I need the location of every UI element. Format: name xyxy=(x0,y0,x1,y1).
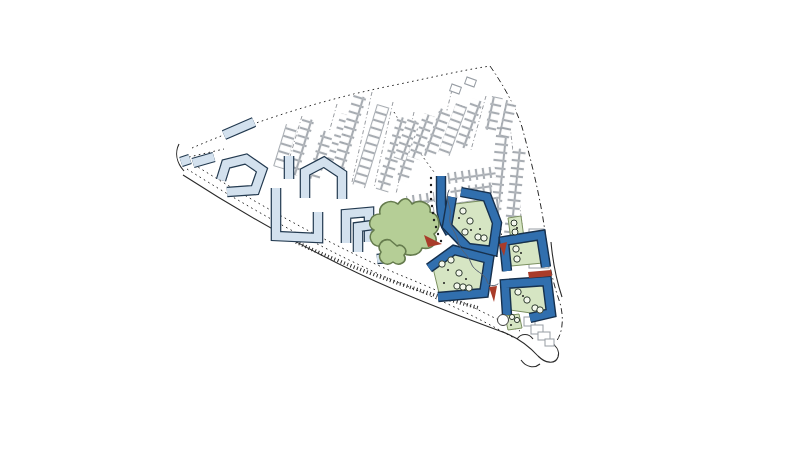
courtyard-tree-icon xyxy=(512,229,518,235)
courtyard-tree-icon xyxy=(456,270,462,276)
terrace-row xyxy=(485,96,503,132)
courtyard-tree-icon xyxy=(460,284,466,290)
courtyard-tree-icon xyxy=(467,218,473,224)
courtyard-tree-icon xyxy=(462,229,468,235)
light-block-tip-bar xyxy=(224,122,254,135)
courtyard-tree-icon xyxy=(509,314,514,319)
courtyard-tree-icon xyxy=(439,261,445,267)
park-tree-icon xyxy=(370,199,439,264)
courtyard-tree-icon xyxy=(514,317,519,322)
light-block-tip-quad xyxy=(181,159,190,162)
courtyard-tree-icon xyxy=(448,257,454,263)
red-triangle-central xyxy=(489,286,497,302)
junction-arc xyxy=(521,360,540,367)
light-block-tip-bar-2 xyxy=(193,157,214,163)
terrace-row xyxy=(447,166,496,184)
courtyard-tree-icon xyxy=(513,246,519,252)
courtyard-tree-icon xyxy=(514,256,520,262)
courtyard-tree-icon xyxy=(515,289,521,295)
courtyard-tree-icon xyxy=(460,208,466,214)
terrace-row xyxy=(499,100,517,138)
courtyard-tree-icon xyxy=(524,297,530,303)
light-block-arch xyxy=(305,162,342,199)
tree-outline-icon xyxy=(498,315,509,326)
junction-loop xyxy=(517,335,533,340)
building-outline xyxy=(545,339,554,346)
courtyard-tree-icon xyxy=(466,285,472,291)
site-plan-canvas xyxy=(0,0,800,450)
courtyard-tree-icon xyxy=(481,235,487,241)
garage-block xyxy=(465,77,477,87)
courtyard-tree-icon xyxy=(475,234,481,240)
courtyard-tree-icon xyxy=(454,283,460,289)
light-block-big-u xyxy=(276,188,318,238)
light-block-pentagon-u xyxy=(221,159,262,192)
site-plan-drawing xyxy=(0,0,800,450)
courtyard-tree-icon xyxy=(511,220,517,226)
courtyard-tree-icon xyxy=(537,307,543,313)
